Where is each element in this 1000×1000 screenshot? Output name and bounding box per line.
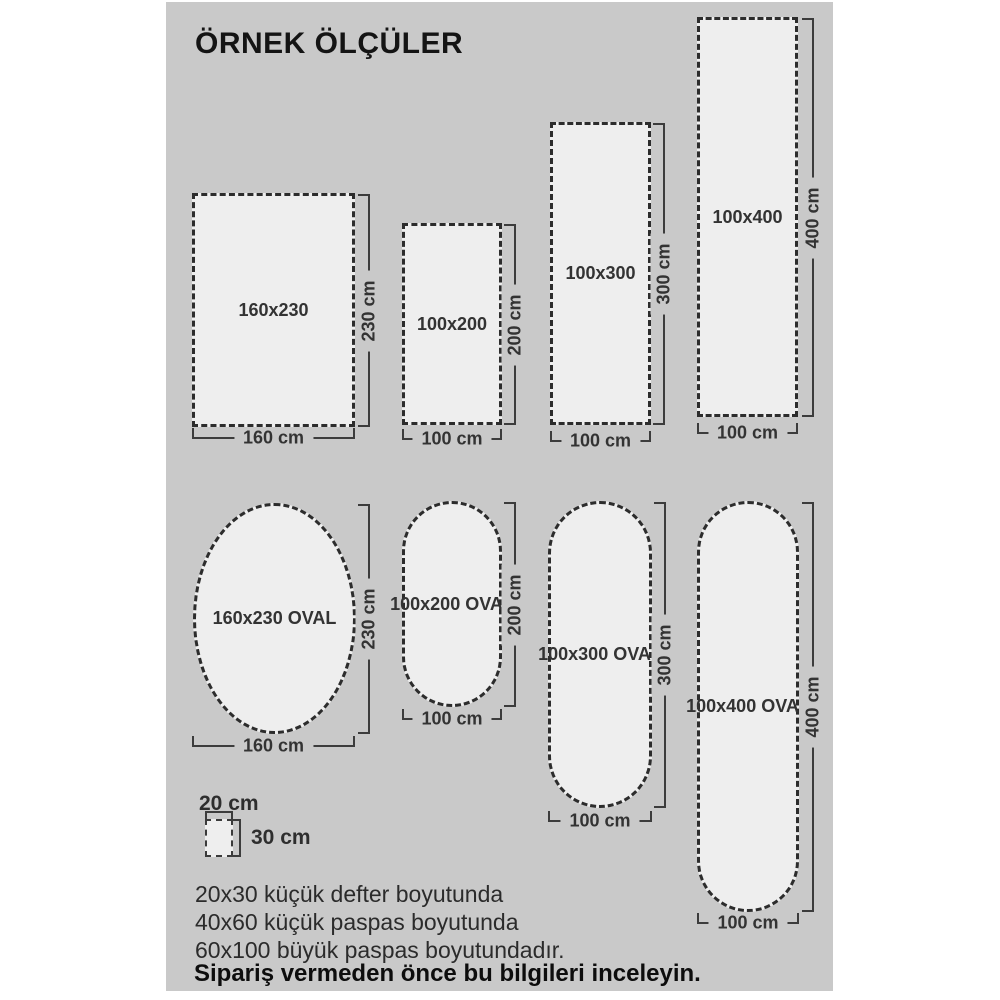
width-dimension-marker-100cm: 100 cm xyxy=(402,438,502,440)
size-rect-100x400-label: 100x400 xyxy=(712,207,782,228)
page-title: ÖRNEK ÖLÇÜLER xyxy=(195,27,463,61)
reference-height-label: 30 cm xyxy=(251,826,311,850)
size-oval-100x400: 100x400 OVAL xyxy=(697,501,799,912)
width-dimension-label: 100 cm xyxy=(708,423,787,444)
width-dimension-marker-160cm: 160 cm xyxy=(192,745,355,747)
width-dimension-label: 100 cm xyxy=(412,429,491,450)
reference-square-20x30 xyxy=(205,819,233,857)
size-rect-100x400: 100x400 xyxy=(697,17,798,417)
height-dimension-label: 230 cm xyxy=(356,578,383,659)
reference-height-bracket: 30 cm xyxy=(239,819,241,857)
height-dimension-marker-400cm: 400 cm xyxy=(812,18,814,417)
height-dimension-label: 400 cm xyxy=(800,666,827,747)
reference-width-bracket xyxy=(205,811,233,813)
width-dimension-label: 100 cm xyxy=(561,431,640,452)
height-dimension-label: 200 cm xyxy=(502,564,529,645)
size-oval-100x400-label: 100x400 OVAL xyxy=(686,696,810,717)
height-dimension-label: 230 cm xyxy=(356,270,383,351)
size-oval-100x300-label: 100x300 OVAL xyxy=(538,644,662,665)
height-dimension-marker-400cm: 400 cm xyxy=(812,502,814,912)
note-line-1: 20x30 küçük defter boyutunda xyxy=(195,880,565,908)
width-dimension-marker-100cm: 100 cm xyxy=(697,432,798,434)
width-dimension-label: 160 cm xyxy=(234,428,313,449)
height-dimension-label: 300 cm xyxy=(651,233,678,314)
height-dimension-marker-230cm: 230 cm xyxy=(368,194,370,427)
height-dimension-marker-200cm: 200 cm xyxy=(514,502,516,707)
size-rect-100x200: 100x200 xyxy=(402,223,502,425)
height-dimension-marker-200cm: 200 cm xyxy=(514,224,516,425)
size-rect-160x230-label: 160x230 xyxy=(238,300,308,321)
width-dimension-label: 100 cm xyxy=(412,709,491,730)
height-dimension-label: 300 cm xyxy=(652,614,679,695)
size-oval-160x230-label: 160x230 OVAL xyxy=(213,608,337,629)
height-dimension-label: 200 cm xyxy=(502,284,529,365)
width-dimension-marker-100cm: 100 cm xyxy=(550,440,651,442)
size-oval-100x300: 100x300 OVAL xyxy=(548,501,652,808)
size-guide-page: ÖRNEK ÖLÇÜLER 160x230 230 cm 160 cm 100x… xyxy=(0,0,1000,1000)
width-dimension-marker-160cm: 160 cm xyxy=(192,437,355,439)
width-dimension-label: 100 cm xyxy=(560,811,639,832)
order-warning-text: Sipariş vermeden önce bu bilgileri incel… xyxy=(194,960,701,988)
height-dimension-marker-230cm: 230 cm xyxy=(368,504,370,734)
size-rect-100x300: 100x300 xyxy=(550,122,651,425)
width-dimension-marker-100cm: 100 cm xyxy=(548,820,652,822)
size-oval-100x200: 100x200 OVAL xyxy=(402,501,502,707)
size-notes: 20x30 küçük defter boyutunda 40x60 küçük… xyxy=(195,880,565,964)
height-dimension-marker-300cm: 300 cm xyxy=(663,123,665,425)
height-dimension-label: 400 cm xyxy=(800,177,827,258)
size-rect-100x300-label: 100x300 xyxy=(565,263,635,284)
size-rect-100x200-label: 100x200 xyxy=(417,314,487,335)
width-dimension-marker-100cm: 100 cm xyxy=(402,718,502,720)
width-dimension-marker-100cm: 100 cm xyxy=(697,922,799,924)
size-rect-160x230: 160x230 xyxy=(192,193,355,427)
note-line-2: 40x60 küçük paspas boyutunda xyxy=(195,908,565,936)
width-dimension-label: 100 cm xyxy=(708,913,787,934)
size-oval-160x230: 160x230 OVAL xyxy=(193,503,356,734)
height-dimension-marker-300cm: 300 cm xyxy=(664,502,666,808)
width-dimension-label: 160 cm xyxy=(234,736,313,757)
size-oval-100x200-label: 100x200 OVAL xyxy=(390,594,514,615)
